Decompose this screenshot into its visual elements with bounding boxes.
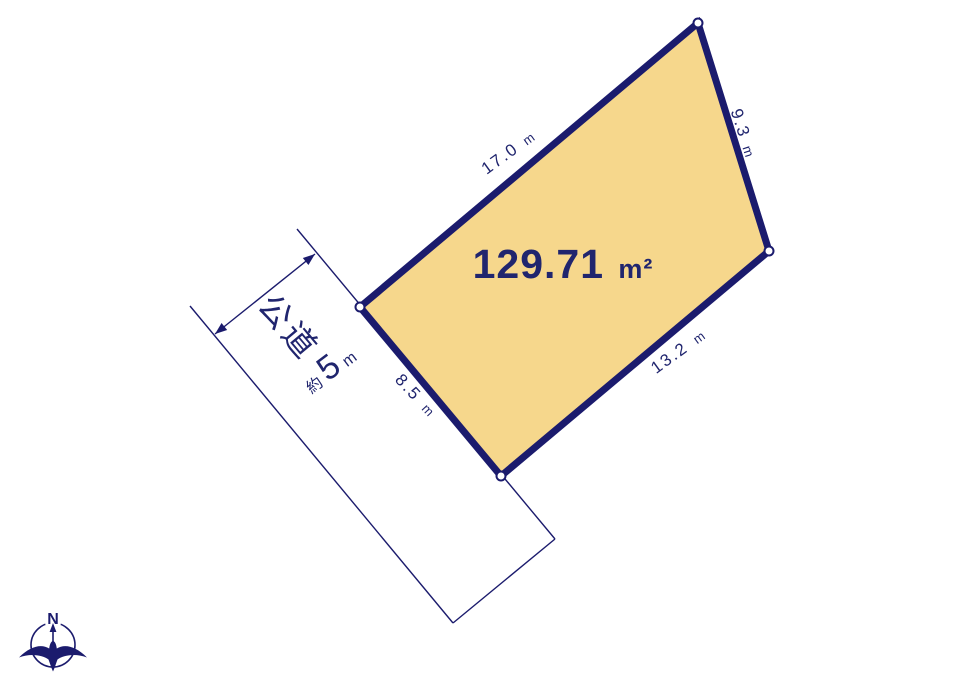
road-width-unit: m (339, 349, 360, 371)
compass-bird-icon (19, 641, 87, 672)
vertex-marker-left (356, 303, 365, 312)
side-bottom-right-unit: m (690, 328, 708, 347)
side-bottom-left-unit: m (419, 401, 438, 420)
vertex-marker-right (765, 247, 774, 256)
diagram-svg: 公道 約 5 m 129.71 m² 17.0 m 9.3 m 13.2 m (0, 0, 960, 680)
area-value: 129.71 (473, 241, 604, 287)
area-unit: m² (618, 254, 653, 284)
land-plot-diagram: 公道 約 5 m 129.71 m² 17.0 m 9.3 m 13.2 m (0, 0, 960, 680)
side-top-left-unit: m (520, 129, 538, 148)
vertex-marker-top (694, 19, 703, 28)
road-end-cap (453, 539, 555, 623)
vertex-marker-bottom (497, 472, 506, 481)
compass: N (19, 611, 87, 672)
